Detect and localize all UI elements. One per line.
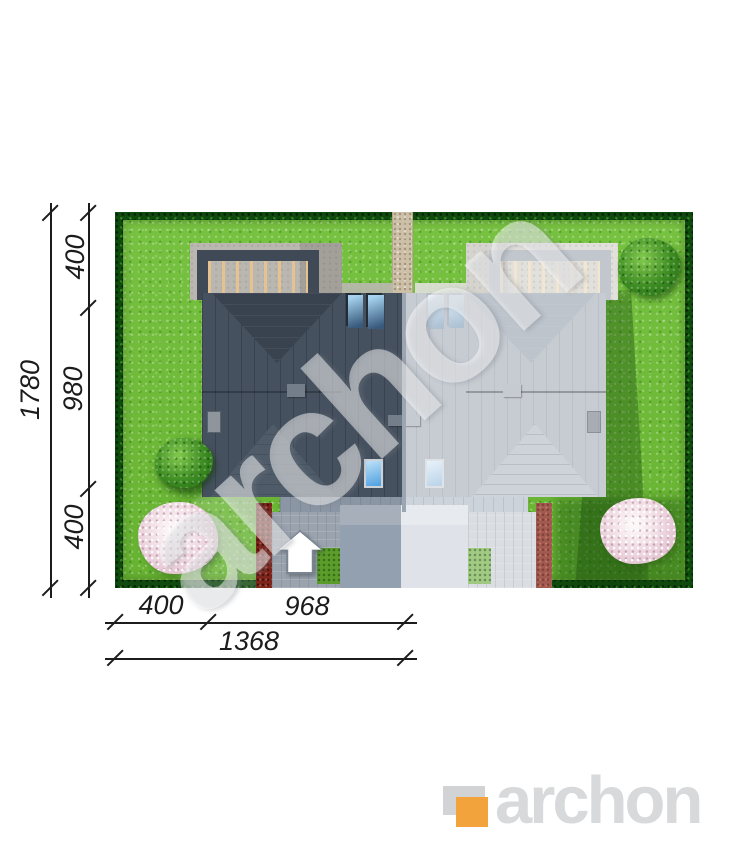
archon-logo: archon (440, 758, 734, 844)
roof-dividing-ridge (402, 293, 406, 512)
site-plan-canvas: archon 1780 400 980 400 400 968 1368 arc… (0, 0, 734, 854)
plot-hedge-border (115, 212, 693, 588)
logo-orange-square (456, 797, 488, 827)
dimension-label-segment: 968 (267, 592, 347, 620)
dimension-label-total-width: 1368 (209, 627, 289, 655)
dimension-label-segment: 400 (60, 487, 88, 567)
dimension-line-total-height (50, 203, 52, 598)
dimension-label-segment: 400 (61, 217, 89, 297)
gravel-path (392, 212, 413, 295)
dimension-label-total-height: 1780 (16, 350, 44, 430)
dimension-line-total-width (105, 658, 417, 660)
dimension-line-width-segments (105, 622, 417, 624)
dimension-label-segment: 400 (121, 591, 201, 619)
logo-wordmark: archon (495, 764, 700, 838)
dimension-label-segment: 980 (59, 349, 87, 429)
